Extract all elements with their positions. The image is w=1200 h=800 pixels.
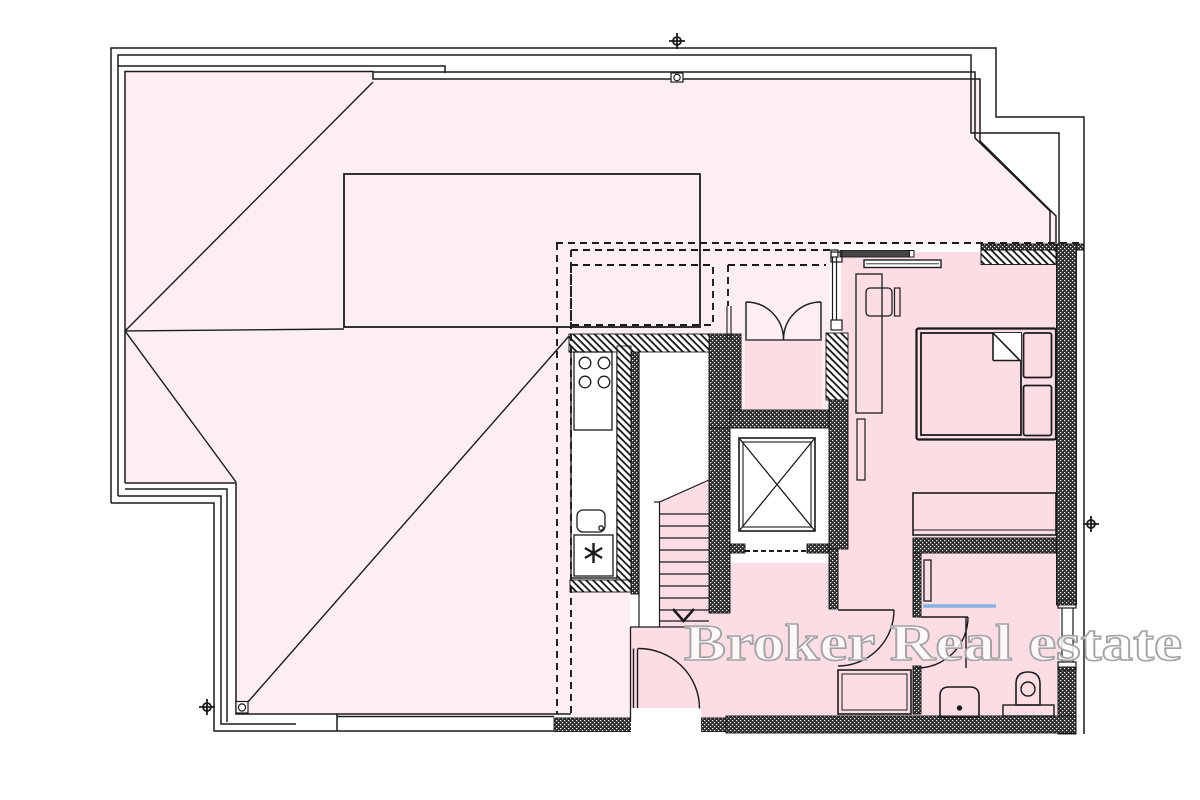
svg-text:Broker Real estate: Broker Real estate: [684, 615, 1182, 672]
